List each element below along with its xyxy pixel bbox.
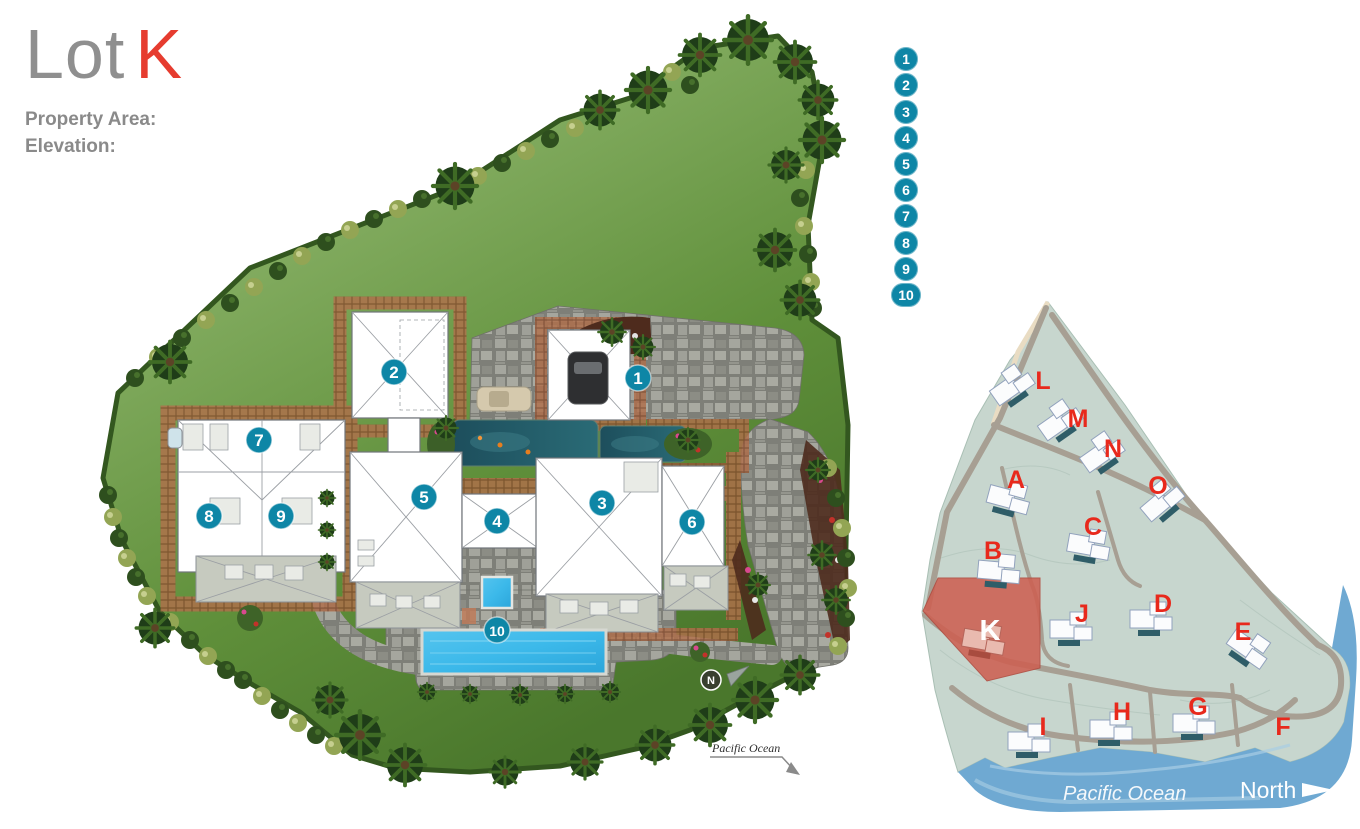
plan-marker-5: 5 xyxy=(411,484,437,510)
map-lot-letter-O: O xyxy=(1148,472,1167,500)
plan-marker-4: 4 xyxy=(484,508,510,534)
plan-marker-7: 7 xyxy=(246,427,272,453)
title-lot-letter: K xyxy=(135,15,183,93)
map-lot-letter-G: G xyxy=(1188,693,1207,721)
page-title: LotK xyxy=(25,18,183,90)
plan-marker-2: 2 xyxy=(381,359,407,385)
legend-marker-10: 10 xyxy=(891,283,921,307)
svg-text:9: 9 xyxy=(276,507,285,526)
legend-marker-2: 2 xyxy=(894,73,918,97)
map-lot-letter-B: B xyxy=(984,537,1002,565)
legend-marker-1: 1 xyxy=(894,47,918,71)
map-lot-letter-M: M xyxy=(1068,405,1089,433)
map-lot-letter-N: N xyxy=(1104,435,1122,463)
map-lot-letter-K: K xyxy=(980,615,1001,647)
plan-marker-9: 9 xyxy=(268,503,294,529)
spa-tub xyxy=(168,428,182,448)
map-lot-letter-C: C xyxy=(1084,513,1102,541)
svg-text:3: 3 xyxy=(597,494,606,513)
property-area-label: Property Area: xyxy=(25,106,183,133)
plan-marker-8: 8 xyxy=(196,503,222,529)
koi-fish xyxy=(498,443,503,448)
plan-marker-3: 3 xyxy=(589,490,615,516)
map-lot-letter-L: L xyxy=(1035,367,1050,395)
plan-marker-6: 6 xyxy=(679,509,705,535)
svg-text:1: 1 xyxy=(633,369,642,388)
svg-text:10: 10 xyxy=(489,623,505,639)
legend-marker-8: 8 xyxy=(894,231,918,255)
map-lot-letter-F: F xyxy=(1275,713,1290,741)
car-dark xyxy=(568,352,608,404)
svg-text:5: 5 xyxy=(419,488,428,507)
svg-text:2: 2 xyxy=(389,363,398,382)
map-lot-letter-J: J xyxy=(1075,600,1089,628)
ocean-note-label: Pacific Ocean xyxy=(711,741,780,755)
site-plan-scene: 1 2 3 4 5 6 7 8 9 10 N Pacific Ocean xyxy=(0,0,1360,829)
plan-marker-1: 1 xyxy=(625,365,651,391)
legend-marker-9: 9 xyxy=(894,257,918,281)
legend-marker-5: 5 xyxy=(894,152,918,176)
main-plan: 1 2 3 4 5 6 7 8 9 10 N Pacific Ocean xyxy=(99,16,857,787)
legend-marker-3: 3 xyxy=(894,100,918,124)
map-north-label: North xyxy=(1240,777,1296,803)
map-lot-letter-A: A xyxy=(1007,466,1025,494)
map-lot-letter-I: I xyxy=(1040,713,1047,741)
compass-label: N xyxy=(707,675,715,687)
map-lot-letter-D: D xyxy=(1154,590,1172,618)
site-map: L M N O A C B J D E K I H G F Pacific Oc… xyxy=(922,302,1357,812)
legend-marker-6: 6 xyxy=(894,178,918,202)
page: { "header": { "title_prefix": "Lot", "ti… xyxy=(0,0,1360,829)
elevation-label: Elevation: xyxy=(25,133,183,160)
legend-marker-7: 7 xyxy=(894,204,918,228)
svg-text:7: 7 xyxy=(254,431,263,450)
header: LotK Property Area: Elevation: xyxy=(25,18,183,160)
map-ocean-label: Pacific Ocean xyxy=(1063,783,1186,805)
plan-marker-10: 10 xyxy=(484,617,510,643)
svg-text:6: 6 xyxy=(687,513,696,532)
legend-marker-4: 4 xyxy=(894,126,918,150)
plunge-pool xyxy=(482,577,512,608)
map-lot-letter-H: H xyxy=(1113,698,1131,726)
map-lot-letter-E: E xyxy=(1235,618,1252,646)
ocean-annotation: Pacific Ocean xyxy=(710,741,800,775)
title-prefix: Lot xyxy=(25,15,125,93)
svg-text:8: 8 xyxy=(204,507,213,526)
svg-text:4: 4 xyxy=(492,512,502,531)
